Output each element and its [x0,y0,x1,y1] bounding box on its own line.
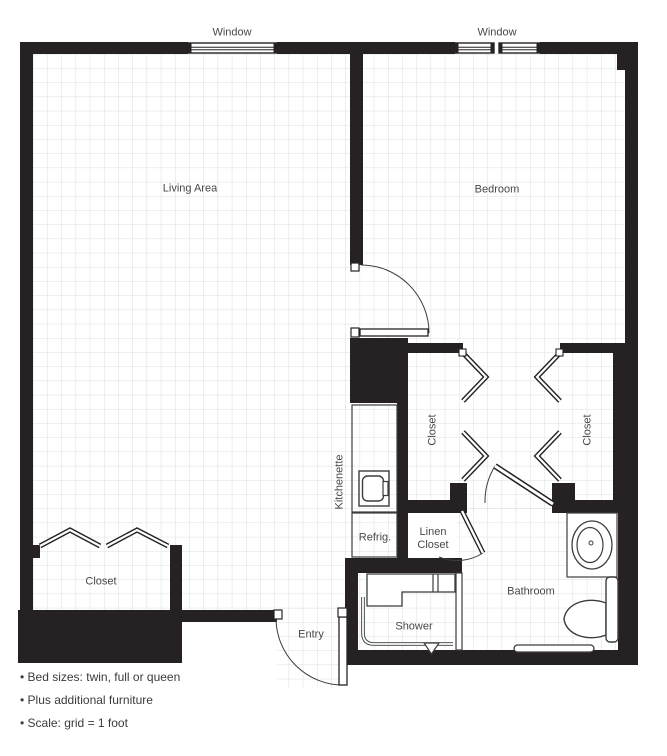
wall-right-closet-back [613,343,625,513]
wall-block-bottom-left [18,610,182,663]
entry-door-leaf [339,617,347,685]
note-bed-sizes: • Bed sizes: twin, full or queen [20,670,180,684]
floor-plan: Window Window Living Area Bedroom Kitche… [0,0,667,756]
wall-top-middle [277,42,455,54]
vanity-sink [567,513,617,577]
wall-bath-door-post-right [552,483,575,513]
bedroom-window [455,43,540,53]
wall-right [625,42,638,665]
living-window [188,43,277,53]
wall-living-closet-post [33,545,40,558]
wall-entry [170,610,277,622]
wall-shower-north [345,558,462,573]
wall-living-closet-right [170,545,182,613]
note-scale: • Scale: grid = 1 foot [20,716,128,730]
bedroom-door-leaf [360,329,428,336]
wall-left [20,42,33,618]
room-label-shower: Shower [395,621,432,634]
grab-bar [514,645,594,652]
wall-bottom [345,650,638,665]
room-label-bathroom: Bathroom [507,586,555,599]
wall-kitchenette-east [397,343,408,570]
wall-right-bathroom [618,513,625,665]
shower-glass-wall [456,573,462,650]
window-label-living: Window [212,27,251,40]
room-label-refrigerator: Refrig. [359,532,391,545]
wall-bedroom-south-right [560,343,615,353]
room-label-closet-right: Closet [582,414,595,445]
note-additional-furniture: • Plus additional furniture [20,693,153,707]
wall-bath-door-post-left [450,483,467,513]
room-label-kitchenette: Kitchenette [334,454,347,509]
room-label-entry: Entry [298,629,324,642]
kitchen-sink-icon [359,471,389,506]
wall-bedroom-south-left [408,343,463,353]
floor-plan-drawing [0,0,667,756]
room-label-closet-left: Closet [427,414,440,445]
wall-living-bedroom-divider [350,42,363,265]
room-label-bedroom: Bedroom [475,184,520,197]
wall-top-left [20,42,188,54]
window-label-bedroom: Window [477,27,516,40]
room-label-linen-closet: Linen Closet [408,526,458,552]
room-label-living-area: Living Area [163,183,217,196]
room-label-living-closet: Closet [85,576,116,589]
